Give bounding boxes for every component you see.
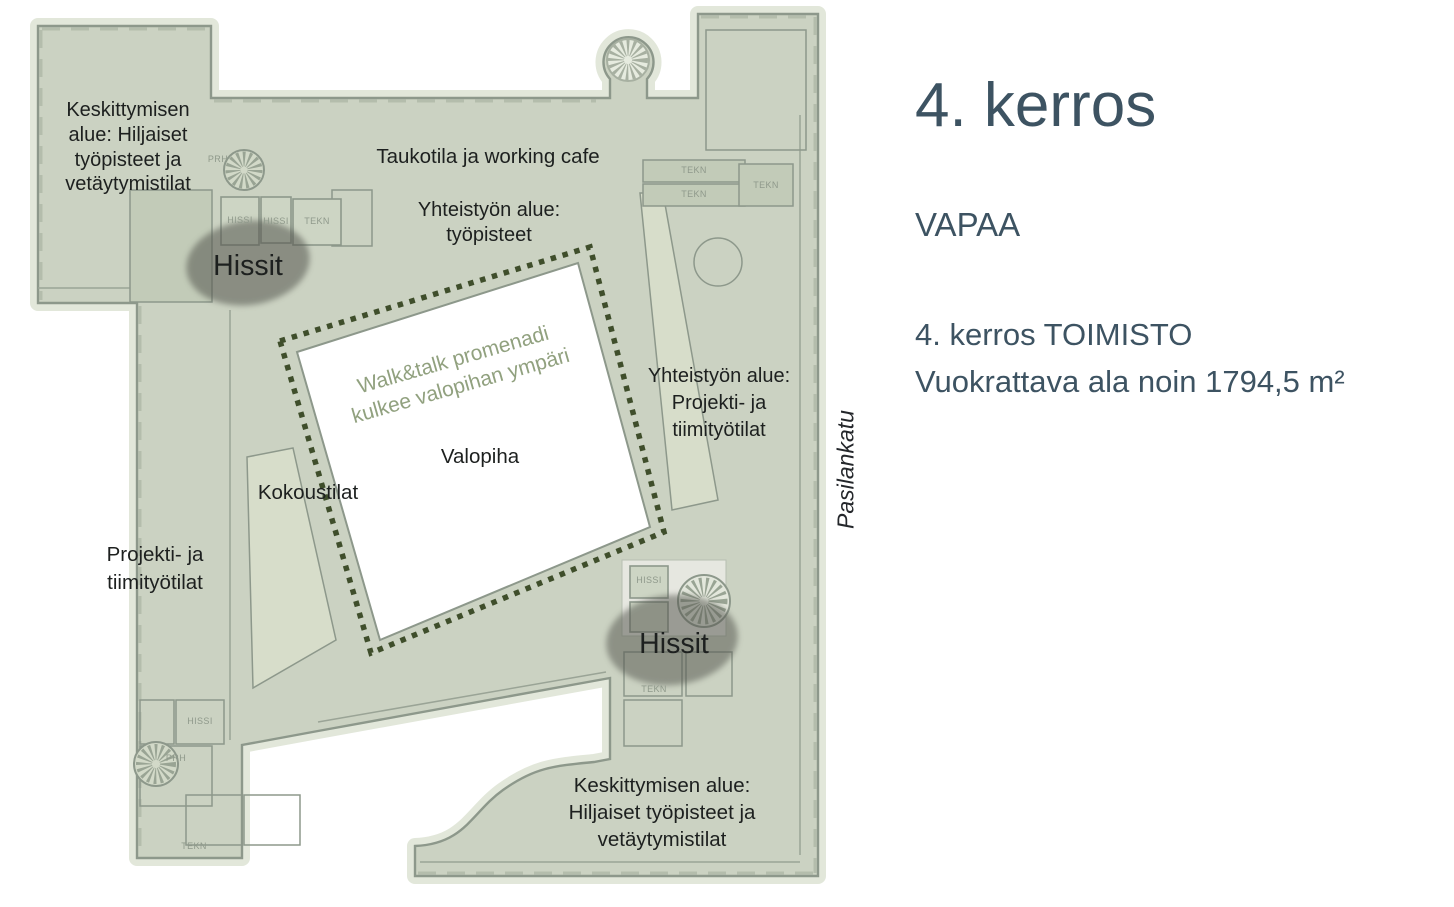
label-focus-area-top: Keskittymisen alue: Hiljaiset työpisteet… [33, 98, 223, 197]
room-tag-stair-top: PRH [196, 154, 240, 164]
spiral-stair-bottom-left [134, 742, 178, 786]
room-tag-technical-bl: TEKN [172, 841, 216, 851]
rentable-area-line: Vuokrattava ala noin 1794,5 m² [915, 364, 1345, 400]
room-tag-technical-tr-b: TEKN [672, 189, 716, 199]
room-tag-technical-bottom: TEKN [632, 684, 676, 694]
room-tag-stair-bl: PRH [154, 753, 198, 763]
label-lightwell: Valopiha [400, 444, 560, 469]
spiral-stair-rooftop [607, 39, 649, 81]
label-elevators-bottom: Hissit [604, 630, 744, 659]
label-collab-project: Yhteistyön alue: Projekti- ja tiimityöti… [629, 363, 809, 444]
availability-status: VAPAA [915, 206, 1020, 244]
room-tag-elevator-bottom: HISSI [627, 575, 671, 585]
floor-title: 4. kerros [915, 72, 1156, 140]
label-focus-area-bottom: Keskittymisen alue: Hiljaiset työpisteet… [522, 772, 802, 853]
atrium-curve [694, 238, 742, 286]
label-break-cafe: Taukotila ja working cafe [328, 144, 648, 169]
office-line: 4. kerros TOIMISTO [915, 317, 1192, 353]
room-tag-technical-tr-a: TEKN [672, 165, 716, 175]
room-tag-technical-top: TEKN [295, 216, 339, 226]
label-elevators-top: Hissit [178, 252, 318, 281]
room-tag-elevator-top-b: HISSI [254, 216, 298, 226]
label-collab-workstations: Yhteistyön alue: työpisteet [369, 198, 609, 248]
slide: Keskittymisen alue: Hiljaiset työpisteet… [0, 0, 1454, 907]
room-tag-elevator-bl: HISSI [178, 716, 222, 726]
room-tag-technical-tr-c: TEKN [744, 180, 788, 190]
label-street-pasilankatu: Pasilankatu [833, 370, 860, 570]
label-meeting-rooms: Kokoustilat [228, 480, 388, 505]
label-project-team-left: Projekti- ja tiimityötilat [65, 541, 245, 596]
